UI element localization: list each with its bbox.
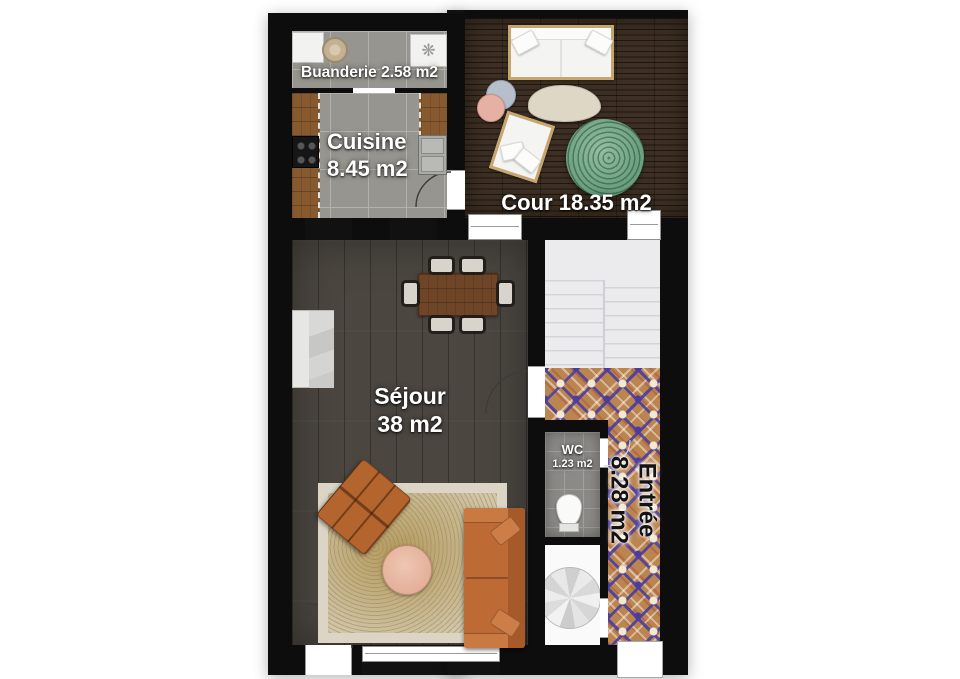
label-sejour-name: Séjour bbox=[292, 382, 528, 410]
wall-right bbox=[660, 218, 688, 675]
fridge bbox=[418, 135, 447, 175]
stairs-divider bbox=[603, 280, 605, 368]
label-sejour: Séjour 38 m2 bbox=[292, 382, 528, 438]
fridge-door-lower bbox=[421, 156, 444, 172]
entrance-door bbox=[617, 641, 663, 678]
outdoor-coffee-table bbox=[528, 85, 601, 122]
sofa-armrest-bottom bbox=[464, 633, 508, 648]
wall-left bbox=[268, 13, 292, 675]
sejour-cour-window bbox=[468, 214, 522, 240]
toilet-tank bbox=[559, 523, 579, 532]
stair-closet bbox=[545, 545, 600, 645]
marble-console bbox=[292, 310, 334, 388]
fan-icon: ❋ bbox=[421, 41, 435, 61]
round-coffee-table bbox=[382, 545, 432, 595]
washing-machine bbox=[292, 32, 324, 63]
label-cour: Cour 18.35 m2 bbox=[465, 190, 688, 217]
marble-top bbox=[309, 311, 334, 388]
stove-cooktop bbox=[292, 136, 319, 168]
wall-sejour-right-lower bbox=[528, 418, 545, 645]
wall-mid-c bbox=[437, 218, 468, 240]
label-wc-name: WC bbox=[545, 442, 600, 458]
sejour-exterior-door-opening bbox=[305, 645, 352, 675]
label-wc-area: 1.23 m2 bbox=[545, 458, 600, 471]
stairs-steps-right bbox=[604, 287, 663, 368]
label-cuisine: Cuisine 8.45 m2 bbox=[327, 129, 408, 183]
label-entree: Entrée 8.28 m2 bbox=[605, 456, 660, 544]
dining-chair bbox=[499, 283, 512, 304]
label-cuisine-name: Cuisine bbox=[327, 129, 408, 156]
cuisine-cour-door-opening bbox=[447, 170, 465, 210]
dining-chair bbox=[462, 318, 483, 331]
outdoor-sofa bbox=[508, 25, 614, 80]
floor-plan-canvas: ❋ Buanderie 2.58 m bbox=[0, 0, 960, 679]
wall-mid-a bbox=[268, 218, 305, 240]
wall-sejour-right-upper bbox=[528, 240, 545, 368]
dining-table bbox=[418, 273, 498, 316]
sofa-seat-seam bbox=[466, 577, 508, 579]
wall-mid-b bbox=[352, 218, 390, 240]
wall-cour-top bbox=[465, 10, 688, 18]
spiral-staircase bbox=[545, 567, 600, 629]
kitchen-counter-right bbox=[419, 93, 447, 137]
label-entree-name: Entrée bbox=[633, 456, 661, 544]
label-buanderie: Buanderie 2.58 m2 bbox=[292, 64, 447, 83]
dining-chair bbox=[462, 259, 483, 272]
outdoor-sofa-seam bbox=[560, 40, 562, 77]
wall-mid-d bbox=[522, 218, 628, 240]
hvac-unit: ❋ bbox=[410, 34, 447, 67]
closet-door-opening bbox=[600, 598, 608, 638]
dining-chair bbox=[404, 283, 417, 304]
stairs-steps-left bbox=[545, 280, 603, 368]
buanderie-cuisine-opening bbox=[353, 88, 395, 93]
sejour-south-window bbox=[362, 646, 500, 662]
wall-top bbox=[268, 13, 465, 31]
label-cuisine-area: 8.45 m2 bbox=[327, 156, 408, 183]
sofa bbox=[464, 508, 525, 648]
label-wc: WC 1.23 m2 bbox=[545, 442, 600, 471]
pouf-pink bbox=[477, 94, 505, 122]
dining-chair bbox=[431, 318, 452, 331]
label-entree-area: 8.28 m2 bbox=[605, 456, 633, 544]
wall-wc-closet-divider bbox=[545, 537, 608, 545]
dining-chair bbox=[431, 259, 452, 272]
label-sejour-area: 38 m2 bbox=[292, 410, 528, 438]
washer-drum-icon bbox=[322, 37, 348, 63]
wall-wc-top bbox=[545, 420, 608, 432]
wall-bottom-b bbox=[352, 645, 362, 675]
sofa-armrest-top bbox=[464, 508, 508, 523]
fridge-door-upper bbox=[421, 138, 444, 154]
wall-bottom-a bbox=[268, 645, 305, 675]
sejour-entree-door-opening bbox=[528, 366, 545, 418]
